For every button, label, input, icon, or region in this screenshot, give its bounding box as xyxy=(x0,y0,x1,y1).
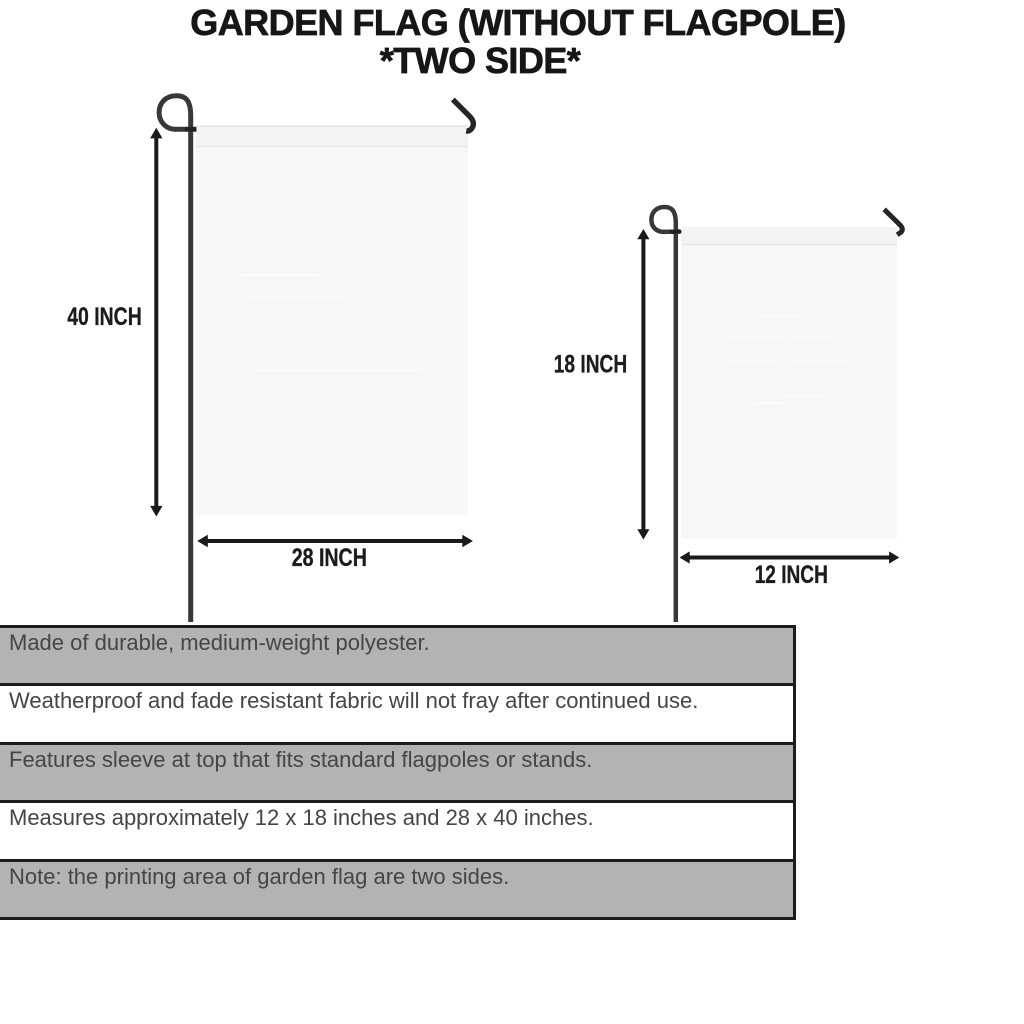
svg-text:40 INCH: 40 INCH xyxy=(67,303,142,331)
svg-text:28 INCH: 28 INCH xyxy=(292,544,367,572)
svg-text:12 INCH: 12 INCH xyxy=(755,561,828,589)
svg-text:18 INCH: 18 INCH xyxy=(554,351,628,379)
